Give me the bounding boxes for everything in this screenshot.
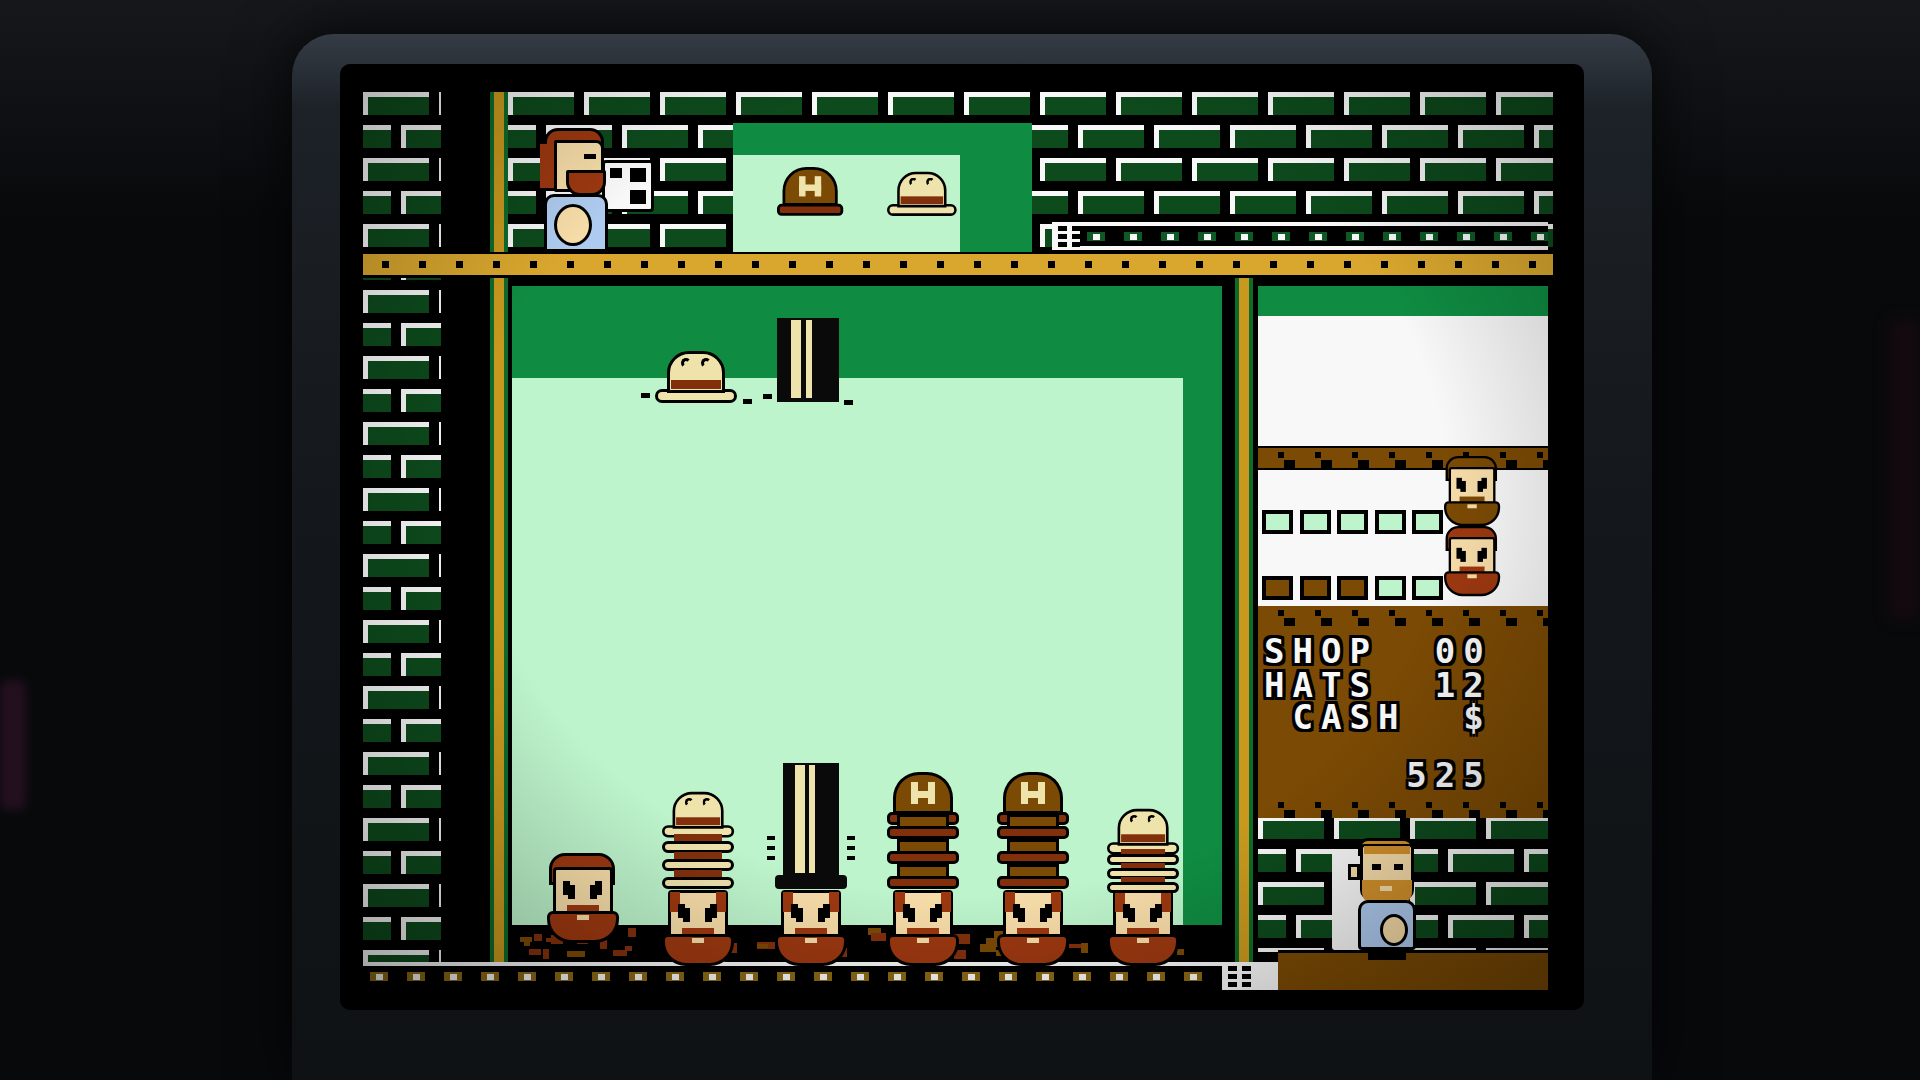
stacked-hat-brim [662, 877, 734, 889]
customer-head-hatted [997, 890, 1069, 968]
bowler-hat [1107, 807, 1179, 855]
customer-head [547, 853, 619, 963]
keeper-hand [1380, 914, 1408, 946]
head-eye [1128, 908, 1135, 922]
hat-band [1121, 834, 1165, 842]
motion-dash [847, 846, 855, 850]
head-mouth [692, 938, 704, 943]
keeper-mouth [1380, 886, 1392, 891]
head-mouth [577, 915, 589, 920]
head-eye [683, 908, 690, 922]
hat-brim [775, 875, 847, 889]
hat-H [1021, 791, 1045, 798]
head-sideburn [829, 892, 839, 912]
head-sideburn [895, 892, 905, 912]
head-eye [705, 908, 712, 922]
stacked-hat-brim [997, 826, 1069, 839]
keeper-eye [1372, 864, 1381, 870]
stacked-hat-brim [997, 851, 1069, 864]
hat-stripe [809, 765, 815, 873]
head-mouth [805, 938, 817, 943]
head-sideburn [783, 892, 793, 912]
head-mouth [917, 938, 929, 943]
head-eye [1018, 908, 1025, 922]
head-eye [1460, 551, 1465, 562]
motion-dash [763, 394, 772, 399]
head-mouth [1137, 938, 1149, 943]
motion-dash [844, 400, 853, 405]
bowler-hat [662, 790, 734, 838]
hat-curl [926, 178, 935, 187]
keeper-eye [1394, 864, 1403, 870]
head-sideburn [1051, 892, 1061, 912]
head-eye [590, 885, 597, 899]
stacked-hat-brim [997, 876, 1069, 889]
thrower-eye [584, 154, 596, 159]
head-eye [818, 908, 825, 922]
hat-band [671, 380, 721, 389]
hat-brim [777, 204, 843, 216]
sprite-layer [340, 64, 1584, 1010]
motion-dash [767, 856, 775, 860]
hat-curl [1130, 815, 1139, 824]
customer-head-hatted [662, 890, 734, 968]
thrower-beard [566, 170, 606, 196]
head-sideburn [670, 892, 680, 912]
head-sideburn [1161, 892, 1171, 912]
head-eye [1478, 481, 1483, 492]
hatch-pane [630, 190, 646, 204]
hat-curl [1147, 815, 1156, 824]
thrower-arm [554, 204, 592, 246]
hat-stripe [795, 765, 805, 873]
keeper-legs [1368, 948, 1406, 960]
head-eye [796, 908, 803, 922]
head-mouth [1467, 504, 1476, 508]
hard-hat [777, 167, 843, 217]
bowler-hat [887, 170, 957, 216]
motion-dash [847, 856, 855, 860]
stacked-hat-brim [887, 851, 959, 864]
order-face-2 [1444, 526, 1500, 612]
motion-dash [743, 399, 752, 404]
head-sideburn [716, 892, 726, 912]
hat-curl [701, 358, 711, 368]
hat-curl [685, 798, 694, 807]
motion-dash [767, 836, 775, 840]
customer-head-hatted [775, 890, 847, 968]
crt-monitor-bezel: SHOP 00 HATS 12 CASH $ 525 [292, 34, 1652, 1080]
hat-band [901, 196, 944, 204]
hat-stripe [806, 320, 812, 398]
customer-head-hatted [1107, 890, 1179, 968]
head-mouth [1027, 938, 1039, 943]
head-mouth [1467, 574, 1476, 578]
motion-dash [767, 846, 775, 850]
keeper-fringe [1364, 846, 1410, 854]
hat-curl [909, 178, 918, 187]
room-background: SHOP 00 HATS 12 CASH $ 525 [0, 0, 1920, 1080]
motion-dash [641, 393, 650, 398]
purple-reflection [0, 680, 26, 810]
head-sideburn [941, 892, 951, 912]
customer-head-hatted [887, 890, 959, 968]
head-eye [1040, 908, 1047, 922]
motion-dash [847, 836, 855, 840]
head-eye [908, 908, 915, 922]
hat-H [911, 791, 935, 798]
hat-curl [702, 798, 711, 807]
head-eye [1460, 481, 1465, 492]
keeper-ear [1348, 864, 1360, 880]
head-eye [1478, 551, 1483, 562]
bowler-hat [655, 349, 737, 403]
head-eye [930, 908, 937, 922]
stacked-hat-brim [887, 876, 959, 889]
red-reflection [1890, 320, 1920, 620]
head-eye [568, 885, 575, 899]
top-hat [777, 318, 839, 402]
head-sideburn [1005, 892, 1015, 912]
game-screen[interactable]: SHOP 00 HATS 12 CASH $ 525 [340, 64, 1584, 1010]
hat-curl [681, 358, 691, 368]
top-hat [783, 763, 839, 877]
hat-band [676, 817, 720, 825]
head-eye [1150, 908, 1157, 922]
stacked-hat-brim [887, 826, 959, 839]
hat-thrower [538, 128, 614, 252]
head-sideburn [1115, 892, 1125, 912]
hatch-pane [630, 168, 646, 182]
hat-H [799, 184, 821, 190]
shop-keeper [1340, 838, 1436, 962]
stacked-hat-brim [1107, 882, 1179, 893]
hat-stripe [791, 320, 801, 398]
